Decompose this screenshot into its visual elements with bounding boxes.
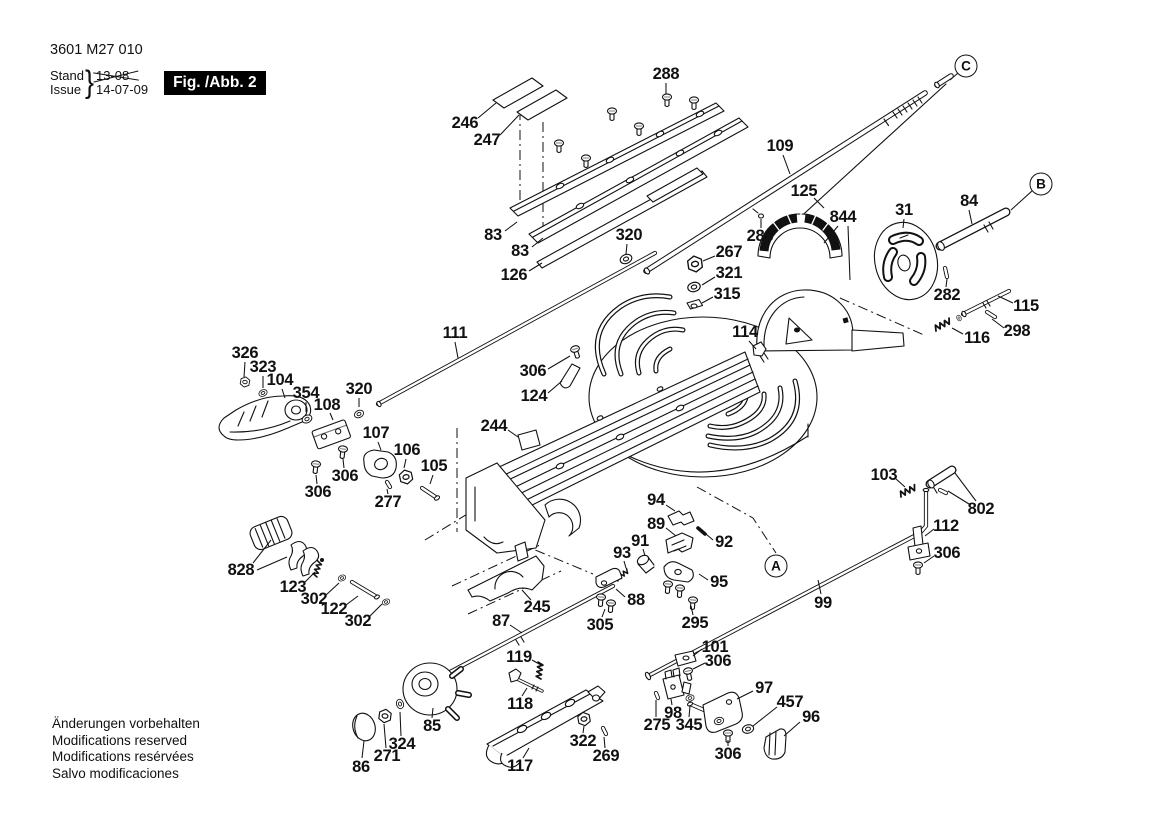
part-label-306: 306 xyxy=(305,484,332,501)
part-label-802: 802 xyxy=(968,501,995,518)
part-label-320: 320 xyxy=(616,227,643,244)
part-label-115: 115 xyxy=(1013,298,1039,315)
figure-label: Fig. /Abb. 2 xyxy=(164,71,266,95)
part-label-269: 269 xyxy=(593,748,620,765)
title-block: 3601 M27 010 Stand Issue } 13-08 14-07-0… xyxy=(50,42,266,98)
part-label-87: 87 xyxy=(492,613,510,630)
part-label-288: 288 xyxy=(653,66,680,83)
part-label-320: 320 xyxy=(346,381,373,398)
part-label-106: 106 xyxy=(394,442,421,459)
ref-circle-B: B xyxy=(1030,173,1053,196)
part-label-282: 282 xyxy=(934,287,961,304)
part-label-306: 306 xyxy=(520,363,547,380)
part-label-111: 111 xyxy=(443,325,468,342)
footer-notes: Änderungen vorbehalten Modifications res… xyxy=(52,716,200,782)
part-label-828: 828 xyxy=(228,562,255,579)
part-label-302: 302 xyxy=(345,613,372,630)
plate-244 xyxy=(518,430,540,450)
part-label-105: 105 xyxy=(421,458,448,475)
part-label-95: 95 xyxy=(710,574,728,591)
part-label-271: 271 xyxy=(374,748,401,765)
footer-note-fr: Modifications resérvées xyxy=(52,749,200,766)
pointer-124 xyxy=(560,345,582,388)
ref-circle-C: C xyxy=(955,55,978,78)
part-label-283: 283 xyxy=(747,228,774,245)
part-label-104: 104 xyxy=(267,372,294,389)
part-label-31: 31 xyxy=(895,202,913,219)
part-label-119: 119 xyxy=(506,649,532,666)
part-label-103: 103 xyxy=(871,467,898,484)
part-label-117: 117 xyxy=(507,758,533,775)
part-label-114: 114 xyxy=(732,324,758,341)
part-label-306: 306 xyxy=(934,545,961,562)
part-label-86: 86 xyxy=(352,759,370,776)
stand-label: Stand xyxy=(50,69,84,83)
part-label-295: 295 xyxy=(682,615,709,632)
part-label-306: 306 xyxy=(332,468,359,485)
part-label-99: 99 xyxy=(814,595,832,612)
part-label-97: 97 xyxy=(755,680,773,697)
part-label-125: 125 xyxy=(791,183,818,200)
part-label-306: 306 xyxy=(705,653,732,670)
part-label-88: 88 xyxy=(627,592,645,609)
part-label-112: 112 xyxy=(933,518,959,535)
part-number: 3601 M27 010 xyxy=(50,42,266,58)
part-label-109: 109 xyxy=(767,138,794,155)
part-label-315: 315 xyxy=(714,286,741,303)
brace-glyph: } xyxy=(85,65,94,101)
issue-label: Issue xyxy=(50,83,84,97)
part-label-247: 247 xyxy=(474,132,501,149)
part-label-91: 91 xyxy=(631,533,649,550)
part-label-246: 246 xyxy=(452,115,479,132)
part-label-83: 83 xyxy=(484,227,502,244)
part-label-107: 107 xyxy=(363,425,390,442)
plate-245 xyxy=(468,556,544,601)
part-label-298: 298 xyxy=(1004,323,1031,340)
part-label-93: 93 xyxy=(613,545,631,562)
part-label-275: 275 xyxy=(644,717,671,734)
part-label-84: 84 xyxy=(960,193,978,210)
part-label-85: 85 xyxy=(423,718,441,735)
part-label-306: 306 xyxy=(715,746,742,763)
footer-note-de: Änderungen vorbehalten xyxy=(52,716,200,733)
part-label-96: 96 xyxy=(802,709,820,726)
carriage-117-group xyxy=(486,662,606,767)
part-label-345: 345 xyxy=(676,717,703,734)
part-label-305: 305 xyxy=(587,617,614,634)
ref-circle-A: A xyxy=(765,555,788,578)
part-label-244: 244 xyxy=(481,418,508,435)
part-label-89: 89 xyxy=(647,516,665,533)
footer-note-en: Modifications reserved xyxy=(52,733,200,750)
exploded-parts-diagram: 3601 M27 010 Stand Issue } 13-08 14-07-0… xyxy=(0,0,1169,826)
part-label-124: 124 xyxy=(521,388,548,405)
part-label-83: 83 xyxy=(511,243,529,260)
part-label-267: 267 xyxy=(716,244,743,261)
part-label-321: 321 xyxy=(716,265,743,282)
part-label-245: 245 xyxy=(524,599,551,616)
part-label-457: 457 xyxy=(777,694,804,711)
part-label-126: 126 xyxy=(501,267,528,284)
old-date: 13-08 xyxy=(96,69,129,83)
part-label-108: 108 xyxy=(314,397,341,414)
part-label-118: 118 xyxy=(507,696,533,713)
part-label-122: 122 xyxy=(321,601,348,618)
footer-note-es: Salvo modificaciones xyxy=(52,766,200,783)
issue-date: 14-07-09 xyxy=(96,83,148,97)
washer-320-top xyxy=(619,253,633,266)
part-label-116: 116 xyxy=(964,330,990,347)
part-label-277: 277 xyxy=(375,494,402,511)
knob-85-group xyxy=(349,663,469,744)
diagram-line-art xyxy=(0,0,1169,826)
part-label-94: 94 xyxy=(647,492,665,509)
part-label-92: 92 xyxy=(715,534,733,551)
nut-267-group xyxy=(687,255,703,309)
part-label-844: 844 xyxy=(830,209,857,226)
